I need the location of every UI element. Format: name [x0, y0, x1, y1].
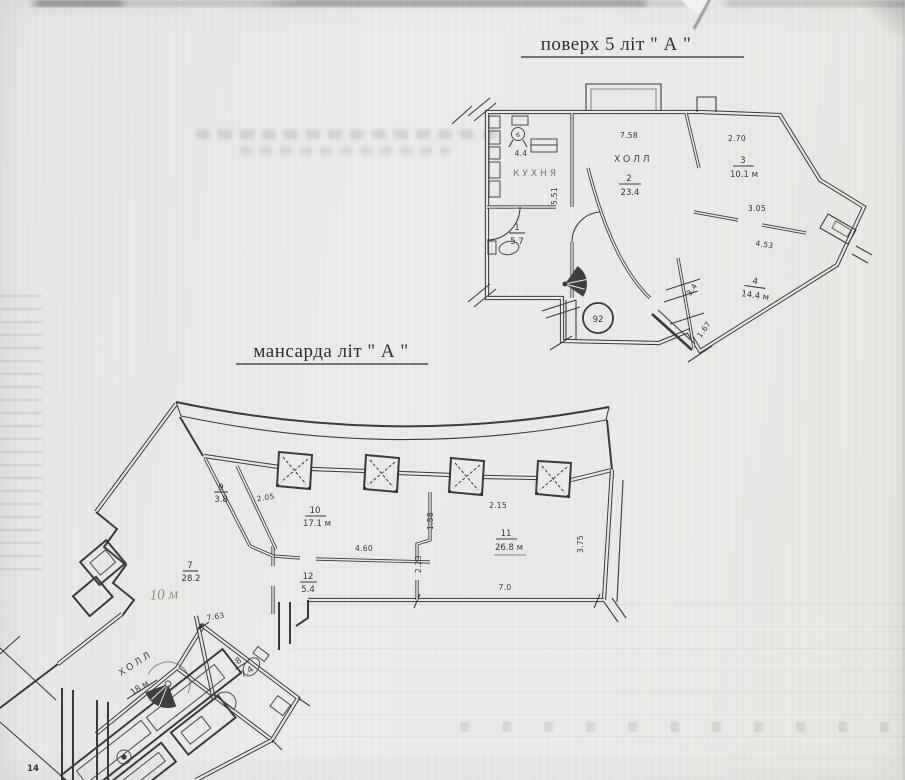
floor5-title: поверх 5 літ " А ": [541, 34, 692, 55]
dim-room11-left: 1.58: [426, 512, 435, 530]
handwritten-area-note: 10 м: [149, 586, 179, 604]
dim-room11-top: 2.15: [489, 501, 507, 510]
room-kitchen-name: КУХНЯ: [513, 169, 559, 179]
dormer-window: [277, 452, 312, 489]
dim-room3-width: 2.70: [728, 134, 746, 143]
room-7-number: 7: [187, 561, 192, 571]
dim-room11-left2: 2.23: [414, 555, 423, 573]
dormer-window: [364, 455, 399, 492]
room-kitchen-number: 6: [516, 131, 520, 139]
room-hall-number: 2: [626, 174, 631, 184]
room-7-area: 28.2: [182, 574, 201, 584]
mansard-castellated-wall: [204, 456, 612, 480]
dim-hall-width: 7.58: [620, 131, 638, 140]
room-11-area: 26.8 м: [495, 543, 523, 553]
scanned-floorplan-page: поверх 5 літ " А " мансарда літ " А ": [0, 0, 905, 780]
dim-hall-depth: 5.51: [550, 187, 559, 205]
room-11-number: 11: [501, 529, 512, 539]
dormer-window: [449, 458, 484, 495]
dormer-window: [536, 461, 571, 497]
mansard-chimney-block: [73, 577, 113, 616]
room-12-area: 5.4: [301, 585, 315, 595]
mansard-title: мансарда літ " А ": [253, 341, 408, 362]
dim-room3-depth: 3.05: [748, 204, 766, 213]
corner-label-14: 14: [27, 764, 39, 774]
floor5-spiral-stair-icon: [563, 266, 596, 297]
mansard-chimney-block: [80, 540, 125, 585]
mansard-hall-name: ХОЛЛ: [117, 649, 155, 679]
room-hall-area: 23.4: [621, 188, 640, 198]
room-4-area: 14.4 м: [741, 289, 770, 303]
mansard-plan: 9 3.8 2.05 10 17.1 м 4.60 1.58 2.15 11 2…: [0, 402, 626, 780]
room-4-label: 4 14.4 м: [741, 275, 772, 303]
dim-room9-wall: 2.05: [256, 492, 275, 504]
room-3-number: 3: [740, 156, 745, 166]
mansard-outer-walls: [0, 404, 626, 708]
mansard-pipe-dot: [121, 754, 126, 759]
room-hall-name: ХОЛЛ: [614, 154, 652, 165]
dim-room11-bottom: 7.0: [499, 583, 512, 592]
floorplan-canvas: поверх 5 літ " А " мансарда літ " А ": [0, 0, 905, 780]
dim-room7-diagonal: 7.63: [206, 611, 225, 623]
dim-room10-width: 4.60: [355, 544, 373, 553]
room-4-number: 4: [752, 277, 759, 288]
room-10-area: 17.1 м: [303, 519, 331, 529]
floor5-plan: 7.58 ХОЛЛ 2 23.4 КУХНЯ 4.4 6 1 5.7 5.51 …: [452, 84, 872, 362]
dim-room11-right: 3.75: [576, 535, 585, 553]
room-kitchen-area: 4.4: [515, 149, 528, 158]
dim-room4-width: 4.53: [755, 239, 774, 251]
floor5-balcony-ladder: [820, 214, 872, 263]
stair-landing-label: 92: [593, 315, 604, 325]
room-3-area: 10.1 м: [730, 170, 758, 180]
room-8-area: 7.4: [239, 665, 256, 681]
room-10-number: 10: [310, 506, 321, 516]
floor5-wall-break-ticks: [452, 98, 712, 362]
room-12-number: 12: [303, 572, 314, 582]
room-9-area: 3.8: [214, 495, 228, 505]
room-bath-number: 1: [514, 223, 519, 233]
mansard-inner-walls: [205, 458, 430, 614]
dim-corridor-depth: 1.67: [695, 320, 713, 340]
room-bath-area: 5.7: [510, 237, 524, 247]
